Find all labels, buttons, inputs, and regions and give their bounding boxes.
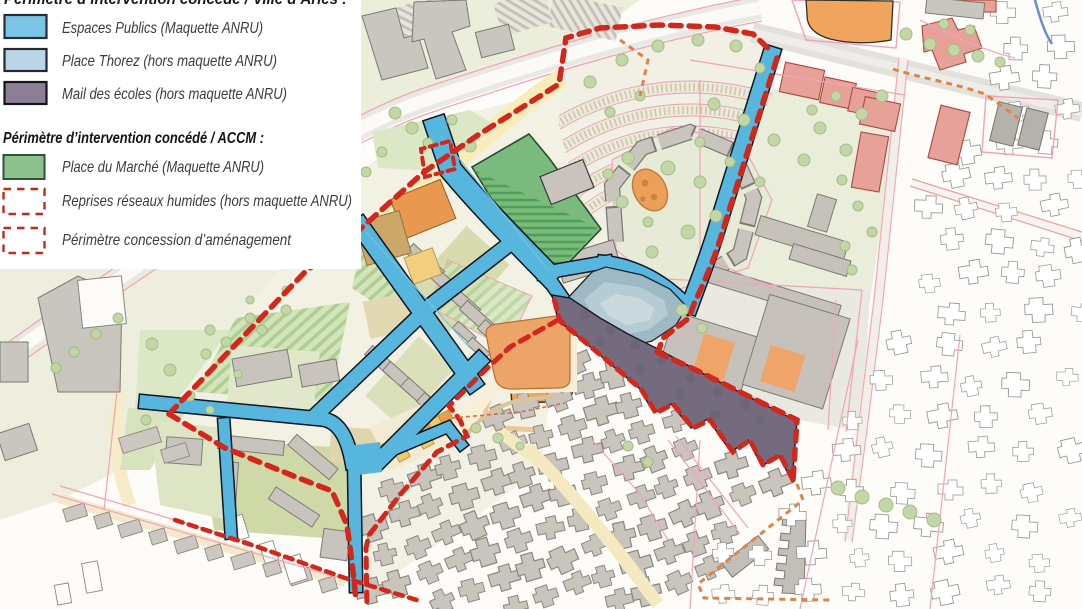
svg-text:Mail des écoles (hors maquette: Mail des écoles (hors maquette ANRU) — [62, 86, 287, 103]
svg-text:Périmètre d’intervention concé: Périmètre d’intervention concédé / Ville… — [4, 0, 347, 8]
svg-text:Périmètre concession d’aménage: Périmètre concession d’aménagement — [62, 232, 291, 249]
svg-text:Place Thorez (hors maquette AN: Place Thorez (hors maquette ANRU) — [62, 53, 277, 70]
svg-text:Espaces Publics (Maquette ANRU: Espaces Publics (Maquette ANRU) — [62, 20, 263, 37]
svg-text:Place du Marché (Maquette ANRU: Place du Marché (Maquette ANRU) — [62, 159, 264, 176]
svg-text:Périmètre d’intervention concé: Périmètre d’intervention concédé / ACCM … — [3, 130, 264, 147]
svg-text:Reprises réseaux humides (hors: Reprises réseaux humides (hors maquette … — [62, 193, 352, 210]
